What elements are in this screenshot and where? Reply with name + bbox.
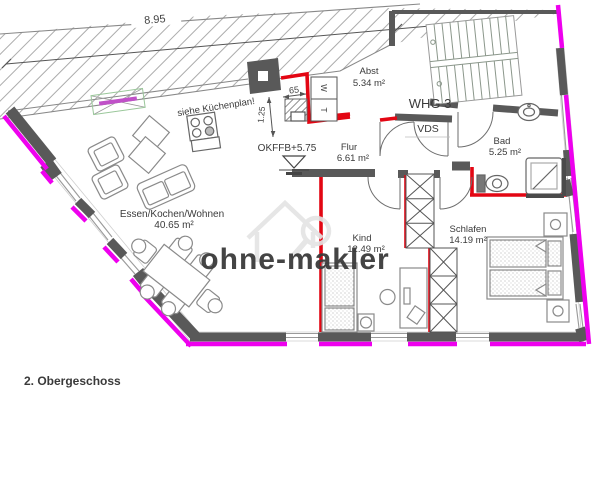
dimension-shaft: 65	[281, 81, 306, 99]
washer-label: W	[319, 84, 328, 92]
label-apartment: WHG 3	[409, 96, 452, 111]
note-kitchen: siehe Küchenplan!	[177, 96, 256, 119]
dim-total-label: 8.95	[144, 13, 166, 27]
kitchen-stove	[187, 112, 221, 152]
label-living-area: 40.65 m²	[154, 220, 194, 231]
coffee-tables	[129, 116, 170, 174]
dim-kitchen-label: 1.25	[255, 106, 267, 124]
label-level: OKFFB+5.75	[258, 143, 317, 154]
floor-title: 2. Obergeschoss	[24, 374, 121, 388]
door-storage	[380, 122, 414, 156]
label-child-area: 12.49 m²	[347, 244, 385, 255]
label-vds: VDS	[417, 123, 439, 135]
bathroom-sink	[518, 104, 540, 121]
dim-shaft-label: 65	[288, 84, 299, 95]
label-storage-name: Abst	[359, 66, 378, 77]
dryer-label: T	[319, 108, 328, 113]
floorplan-drawing: 8.95	[0, 0, 608, 480]
dimension-kitchen: 1.25	[255, 97, 275, 137]
door-bath	[458, 112, 493, 147]
label-child-name: Kind	[352, 233, 371, 244]
label-hall-area: 6.61 m²	[337, 153, 369, 164]
label-bath-name: Bad	[494, 136, 511, 147]
label-bath-area: 5.25 m²	[489, 147, 521, 158]
toilet	[477, 175, 508, 192]
shower	[526, 158, 564, 196]
desk	[380, 268, 427, 328]
desk-chair	[380, 290, 395, 305]
label-living-name: Essen/Kochen/Wohnen	[120, 209, 224, 220]
stairwell	[426, 16, 522, 105]
label-bedroom-area: 14.19 m²	[449, 235, 487, 246]
door-bedroom	[440, 177, 472, 209]
label-bedroom-name: Schlafen	[450, 224, 487, 235]
chimney-corner-block	[247, 58, 281, 94]
double-bed	[487, 213, 569, 322]
label-hall-name: Flur	[341, 142, 357, 153]
label-storage-area: 5.34 m²	[353, 78, 385, 89]
floorplan-page: 8.95	[0, 0, 608, 480]
door-child	[368, 177, 400, 209]
